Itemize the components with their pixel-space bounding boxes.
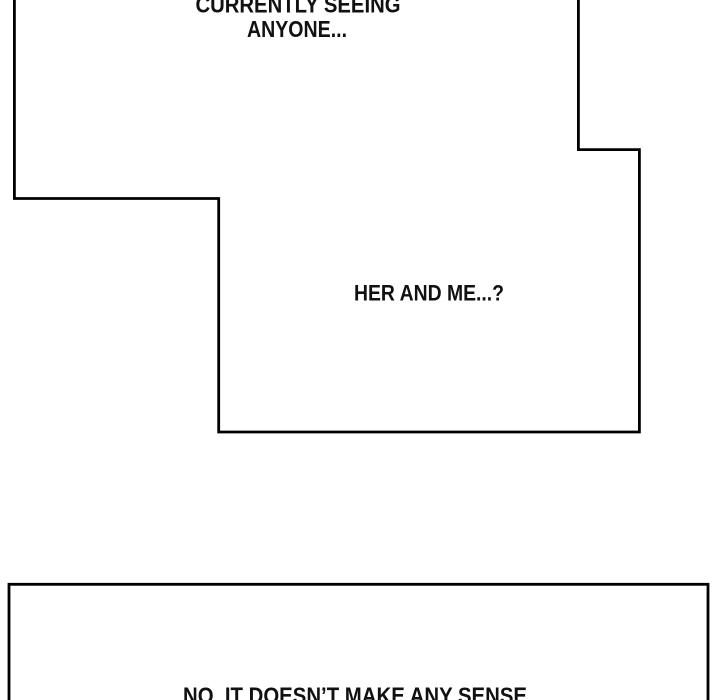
svg-text:CURRENTLY SEEING: CURRENTLY SEEING — [196, 0, 401, 18]
svg-text:HER AND ME...?: HER AND ME...? — [354, 281, 504, 306]
svg-text:ANYONE...: ANYONE... — [247, 16, 347, 42]
svg-text:NO, IT DOESN’T MAKE ANY SENSE.: NO, IT DOESN’T MAKE ANY SENSE... — [183, 683, 544, 700]
